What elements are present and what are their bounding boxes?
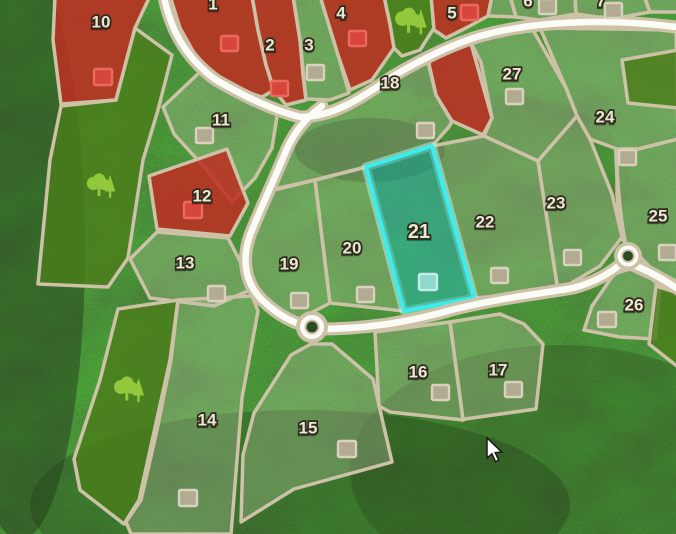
parcel-label-12: 12 <box>193 187 212 206</box>
parcel-marker-17 <box>505 382 522 397</box>
parcel-marker-20 <box>357 287 374 302</box>
parcel-marker-19 <box>291 293 308 308</box>
parcel-label-4: 4 <box>336 4 346 23</box>
parcel-marker-27 <box>506 89 523 104</box>
parcel-label-20: 20 <box>343 239 362 258</box>
parcel-marker-26 <box>598 312 616 327</box>
parcel-marker-7 <box>605 3 622 18</box>
parcel-marker-21 <box>419 274 437 290</box>
parcel-label-5: 5 <box>447 4 456 23</box>
parcel-label-6: 6 <box>523 0 532 11</box>
parcel-marker-10 <box>94 69 112 85</box>
parcel-marker-25 <box>659 245 676 260</box>
parcel-label-21: 21 <box>408 221 430 243</box>
parcel-map: 1012345671112131415161718272425232219202… <box>0 0 676 534</box>
parcel-marker-13 <box>208 286 225 301</box>
parcel-label-17: 17 <box>489 361 508 380</box>
parcel-marker-24 <box>619 150 636 165</box>
parcel-marker-1 <box>221 36 238 51</box>
parcel-label-25: 25 <box>649 207 668 226</box>
parcel-label-7: 7 <box>596 0 605 11</box>
parcel-marker-18 <box>417 123 434 138</box>
parcel-label-18: 18 <box>381 74 400 93</box>
parcel-marker-2 <box>271 81 288 96</box>
parcel-label-1: 1 <box>208 0 217 14</box>
parcel-label-23: 23 <box>547 194 566 213</box>
parcel-marker-6 <box>539 0 556 14</box>
parcel-label-2: 2 <box>265 36 274 55</box>
parcel-marker-16 <box>432 385 449 400</box>
roundabout <box>614 242 642 270</box>
parcel-label-22: 22 <box>476 213 495 232</box>
parcel-u2[interactable] <box>644 0 676 12</box>
parcel-marker-15 <box>338 441 356 457</box>
parcel-marker-22 <box>491 268 508 283</box>
parcel-label-10: 10 <box>92 13 111 32</box>
parcel-marker-3 <box>307 65 324 80</box>
parcel-marker-4 <box>349 31 366 46</box>
parcel-label-26: 26 <box>625 296 644 315</box>
parcel-marker-11 <box>196 128 213 143</box>
parcel-marker-5 <box>461 5 478 20</box>
parcel-label-11: 11 <box>212 111 230 130</box>
parcel-label-14: 14 <box>198 411 217 430</box>
parcel-green-topright[interactable] <box>622 50 676 108</box>
parcel-label-16: 16 <box>409 363 428 382</box>
parcel-label-3: 3 <box>304 36 313 55</box>
parcel-marker-23 <box>564 250 581 265</box>
parcel-label-15: 15 <box>299 419 318 438</box>
parcel-marker-14 <box>179 490 197 506</box>
map-canvas[interactable]: 1012345671112131415161718272425232219202… <box>0 0 676 534</box>
parcel-label-13: 13 <box>176 254 195 273</box>
parcel-label-27: 27 <box>503 65 522 84</box>
parcel-label-24: 24 <box>596 108 615 127</box>
roundabout <box>296 311 328 343</box>
parcel-label-19: 19 <box>280 255 299 274</box>
